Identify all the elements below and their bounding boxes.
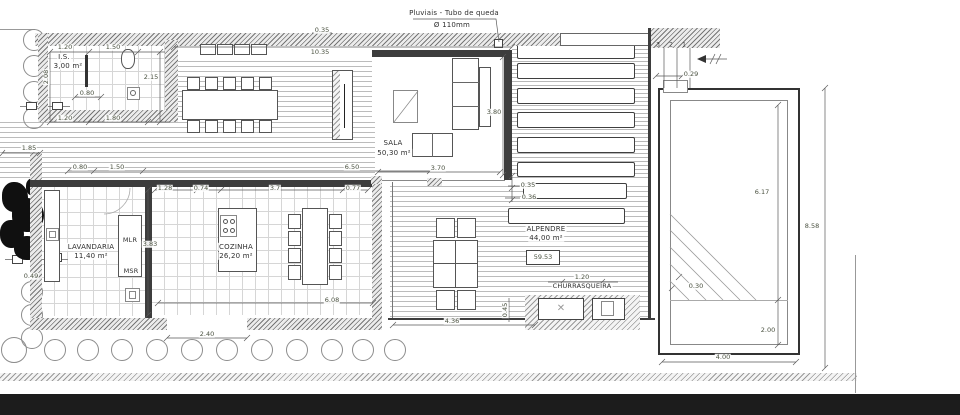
bush: [44, 339, 66, 361]
grill-icon: ✕: [557, 304, 565, 314]
appliance-label-msr: MSR: [123, 268, 140, 276]
bush: [111, 339, 133, 361]
chair: [288, 214, 301, 229]
table-divider: [433, 263, 478, 264]
table-divider: [455, 240, 456, 288]
room-area-lavandaria: 11,40 m²: [73, 252, 109, 260]
chair: [223, 120, 236, 133]
dim-churras-width: 1.20: [574, 274, 590, 281]
room-area-alpendre: 44,00 m²: [528, 234, 564, 242]
room-label-alpendre: ALPENDRE: [526, 225, 567, 233]
burner: [230, 228, 235, 233]
room-label-churrasqueira: CHURRASQUEIRA: [552, 283, 613, 291]
sofa-vertical: [452, 58, 479, 130]
chair: [288, 248, 301, 263]
slat-row: [508, 208, 625, 224]
room-label-is: I.S.: [57, 53, 71, 61]
step-number-1: 1: [682, 42, 686, 49]
burner: [230, 219, 235, 224]
slat-row: [517, 112, 635, 128]
post: [26, 102, 37, 110]
bush: [321, 339, 343, 361]
dim-kit-a: 1.28: [157, 185, 173, 192]
bench-module: [217, 44, 233, 55]
sofa-divider: [452, 106, 479, 107]
sofa-extension: [479, 67, 491, 127]
beam-top: [560, 33, 650, 46]
chair: [436, 290, 455, 310]
bush: [216, 339, 238, 361]
chair: [259, 120, 272, 133]
dim-step-width: 0.29: [683, 71, 699, 78]
dim-row-c: 6.50: [344, 164, 360, 171]
bottom-bar: [0, 394, 960, 415]
bush: [352, 339, 374, 361]
dim-is-top-b: 1.50: [105, 44, 121, 51]
dim-kit-c: 3.7: [269, 185, 281, 192]
chair: [205, 77, 218, 90]
dim-sala-depth: 3.80: [486, 109, 502, 116]
bush: [384, 339, 406, 361]
bush: [77, 339, 99, 361]
slat-row: [523, 183, 627, 199]
dim-alp-side: 0.45: [502, 302, 509, 318]
dim-is-bot-a: 1.20: [57, 115, 73, 122]
step-number-2: 2: [669, 42, 673, 49]
post: [52, 102, 63, 110]
bbq-sink-basin: [601, 301, 614, 316]
dim-is-top-a: 1.20: [57, 44, 73, 51]
bush: [1, 337, 27, 363]
fireplace-hatch: [333, 71, 340, 139]
dim-is-bot-b: 1.80: [105, 115, 121, 122]
chair: [288, 231, 301, 246]
dim-pool-step: 0.30: [688, 283, 704, 290]
dim-alp-a: 0.35: [520, 182, 536, 189]
dim-is-mid: 2.15: [143, 74, 159, 81]
room-label-cozinha: COZINHA: [218, 243, 254, 251]
chair: [329, 231, 342, 246]
dim-row-a: 0.80: [72, 164, 88, 171]
is-door-leaf: [85, 55, 88, 87]
sala-stub-mid: [427, 178, 442, 186]
chair: [205, 120, 218, 133]
chair: [329, 248, 342, 263]
level-marker-value: 59.53: [534, 254, 553, 261]
fireplace-line: [344, 84, 345, 128]
dim-wall-thickness: 0.35: [314, 27, 330, 34]
dim-pool-shallow: 2.00: [760, 327, 776, 334]
dim-alp-b: 0.36: [521, 194, 537, 201]
slat-row: [517, 88, 635, 104]
slat-row: [517, 137, 635, 153]
step-number-3: 3: [656, 42, 660, 49]
is-sink-basin: [130, 90, 136, 96]
kitchen-table: [302, 208, 328, 285]
chair: [457, 290, 476, 310]
dim-sala-width: 3.70: [430, 165, 446, 172]
dim-gate-width: 2.40: [199, 331, 215, 338]
wall-coz-right: [372, 183, 382, 318]
pool-ladder: [663, 80, 688, 93]
level-marker-box: 59.53: [526, 250, 560, 265]
chair: [241, 77, 254, 90]
chair: [329, 265, 342, 280]
dim-pool-width: 4.00: [715, 354, 731, 361]
burner: [223, 219, 228, 224]
toilet: [121, 49, 135, 69]
rug: [393, 90, 418, 123]
chair: [187, 120, 200, 133]
wall-bottom-b: [247, 318, 382, 330]
bush: [181, 339, 203, 361]
room-area-cozinha: 26,20 m²: [218, 252, 254, 260]
site-boundary-line: [855, 255, 856, 393]
cooktop: [220, 215, 237, 237]
room-label-sala: SALA: [382, 139, 403, 147]
bench-module: [234, 44, 250, 55]
pergola-right-line: [648, 28, 651, 320]
chair: [288, 265, 301, 280]
sofa-divider: [452, 82, 479, 83]
pluvial-note-line2: Ø 110mm: [433, 21, 471, 29]
bush: [146, 339, 168, 361]
appliance-label-mlr: MLR: [122, 237, 138, 245]
alpendre-left-line: [392, 182, 393, 318]
dim-kit-width: 6.08: [324, 297, 340, 304]
chair: [436, 218, 455, 238]
chair: [329, 214, 342, 229]
washer-drum: [49, 231, 56, 238]
pluvial-pipe: [494, 39, 503, 48]
wall-sala-right: [504, 50, 512, 180]
dim-site-depth: 8.58: [804, 223, 820, 230]
pool-inner: [670, 100, 788, 345]
chair: [457, 218, 476, 238]
dim-is-left: 2.08: [43, 69, 50, 85]
chair: [241, 120, 254, 133]
dim-bush: 0.49: [23, 273, 39, 280]
bush: [251, 339, 273, 361]
room-label-lavandaria: LAVANDARIA: [67, 243, 116, 251]
wall-lav-coz: [145, 187, 152, 318]
dim-kit-b: 0.74: [193, 185, 209, 192]
dim-lav-depth: 3.83: [142, 241, 158, 248]
bush: [286, 339, 308, 361]
sofa-divider: [432, 133, 433, 157]
bbq-grill-box: ✕: [538, 298, 584, 320]
slat-row: [517, 162, 635, 177]
dim-row-b: 1.50: [109, 164, 125, 171]
dim-is-inner: 0.80: [79, 90, 95, 97]
bench-module: [200, 44, 216, 55]
burner: [223, 228, 228, 233]
slat-row: [517, 63, 635, 79]
dim-kit-d: 0.77: [345, 185, 361, 192]
wall-left-lower: [30, 152, 42, 330]
pluvial-note-line1: Pluviais - Tubo de queda: [408, 9, 500, 17]
chair: [187, 77, 200, 90]
room-area-is: 3,00 m²: [53, 62, 84, 70]
dim-top-width: 10.35: [310, 49, 331, 56]
dim-left-offset: 1.85: [21, 145, 37, 152]
dining-table: [182, 90, 278, 120]
chair: [259, 77, 272, 90]
wall-bottom-a: [30, 318, 167, 330]
floor-plan: ✕ 59.53 Pluviais - Tubo de queda Ø 110mm…: [0, 0, 960, 415]
dim-alp-width: 4.36: [444, 318, 460, 325]
ground-strip: [0, 373, 857, 381]
sala-stub-left: [371, 176, 382, 184]
chair: [223, 77, 236, 90]
room-area-sala: 50,30 m²: [376, 149, 412, 157]
bench-module: [251, 44, 267, 55]
wall-sala-top: [372, 50, 512, 57]
laundry-sink-basin: [129, 291, 136, 299]
pool-shallow-line: [670, 300, 788, 301]
dim-pool-length: 6.17: [754, 189, 770, 196]
